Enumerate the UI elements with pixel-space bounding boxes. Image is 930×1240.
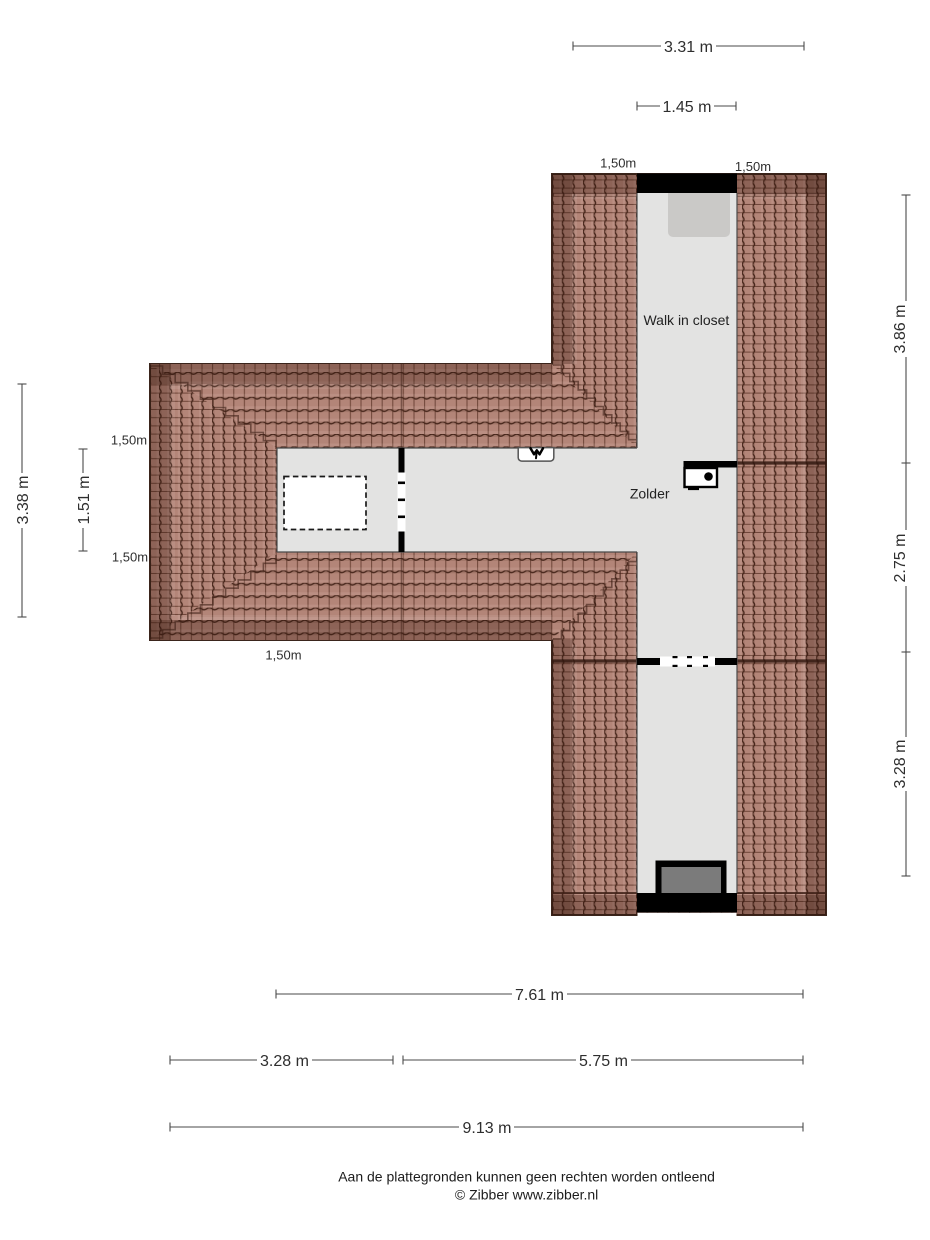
svg-text:1,50m: 1,50m xyxy=(600,156,636,171)
svg-text:Walk in closet: Walk in closet xyxy=(643,312,729,328)
svg-text:9.13 m: 9.13 m xyxy=(463,1120,512,1137)
svg-text:2.75 m: 2.75 m xyxy=(892,534,909,583)
svg-text:3.28 m: 3.28 m xyxy=(260,1053,309,1070)
svg-text:1,50m: 1,50m xyxy=(111,433,147,448)
svg-text:Aan de plattegronden kunnen ge: Aan de plattegronden kunnen geen rechten… xyxy=(338,1169,715,1185)
svg-text:3.38 m: 3.38 m xyxy=(15,476,32,525)
svg-text:3.28 m: 3.28 m xyxy=(892,740,909,789)
svg-text:1,50m: 1,50m xyxy=(112,550,148,565)
svg-text:1.51 m: 1.51 m xyxy=(76,476,93,525)
svg-text:7.61 m: 7.61 m xyxy=(515,987,564,1004)
svg-text:3.31 m: 3.31 m xyxy=(664,39,713,56)
svg-text:© Zibber www.zibber.nl: © Zibber www.zibber.nl xyxy=(455,1187,598,1203)
svg-text:1,50m: 1,50m xyxy=(265,648,301,663)
svg-text:3.86 m: 3.86 m xyxy=(892,305,909,354)
svg-text:5.75 m: 5.75 m xyxy=(579,1053,628,1070)
svg-text:Zolder: Zolder xyxy=(630,486,670,502)
svg-text:1.45 m: 1.45 m xyxy=(663,99,712,116)
svg-text:1,50m: 1,50m xyxy=(735,159,771,174)
